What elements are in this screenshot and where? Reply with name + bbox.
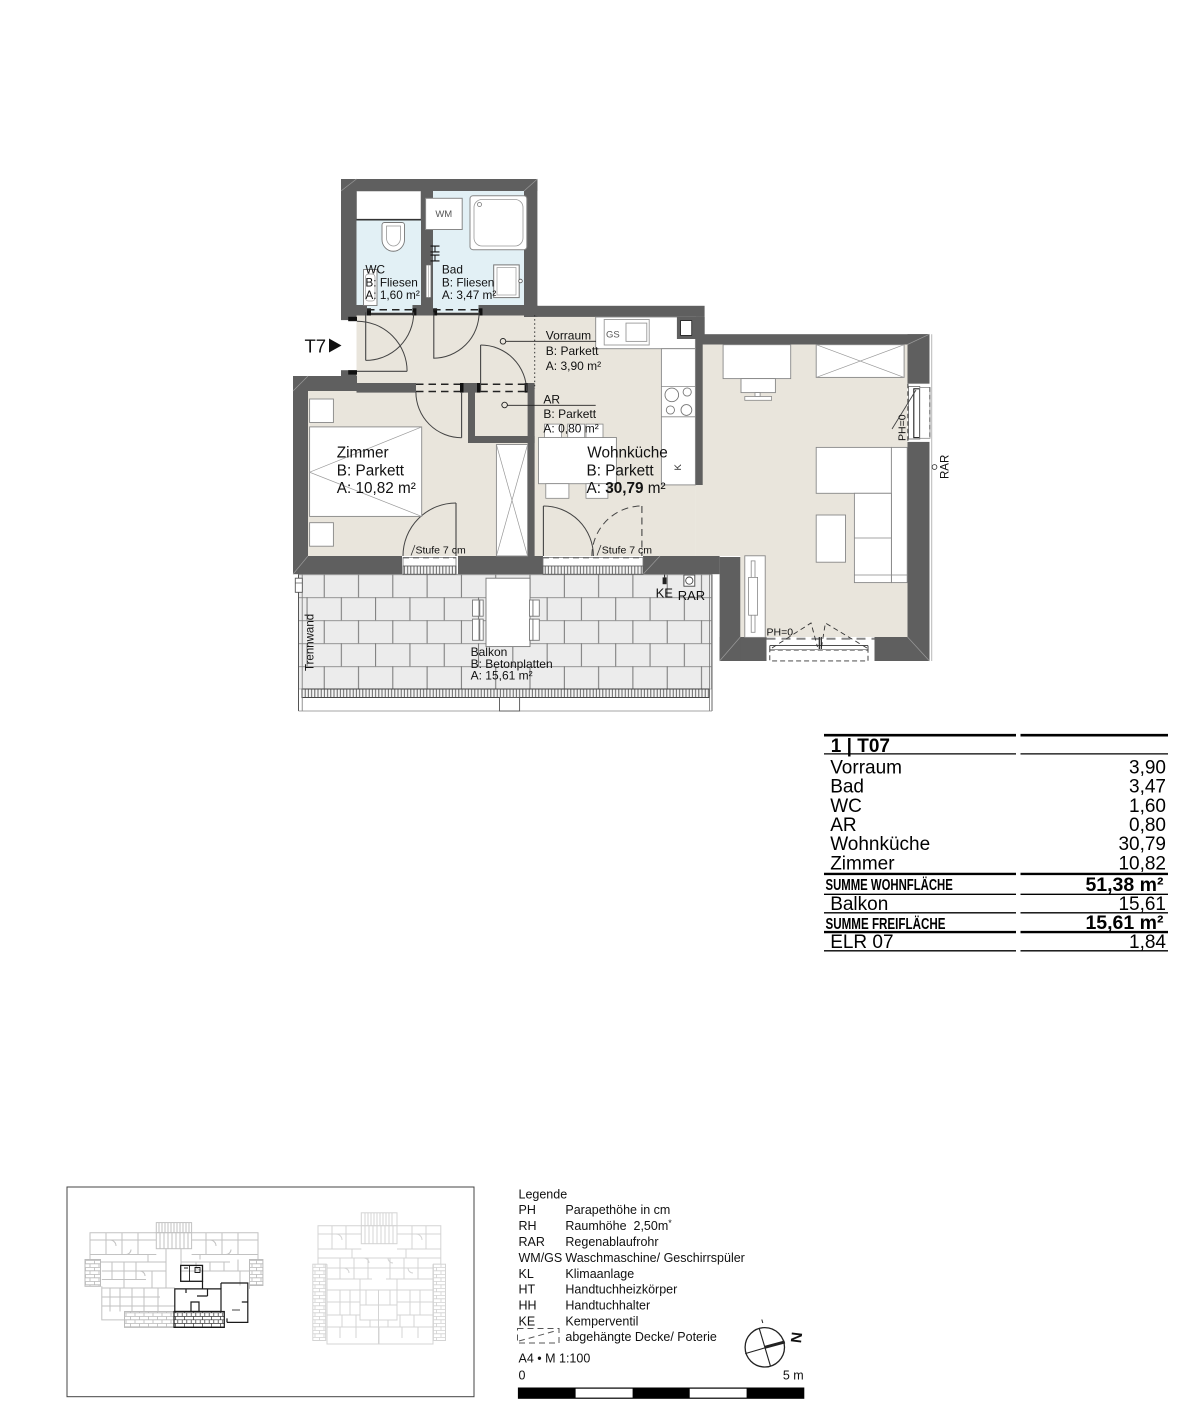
svg-text:Wohnküche: Wohnküche <box>587 445 668 462</box>
svg-text:SUMME WOHNFLÄCHE: SUMME WOHNFLÄCHE <box>826 877 953 894</box>
svg-text:HH: HH <box>429 244 443 262</box>
svg-text:A: 3,47 m²: A: 3,47 m² <box>442 288 496 302</box>
svg-text:SUMME FREIFLÄCHE: SUMME FREIFLÄCHE <box>826 916 946 933</box>
svg-text:B: Parkett: B: Parkett <box>543 407 596 421</box>
svg-text:A: 1,60 m²: A: 1,60 m² <box>365 288 419 302</box>
svg-text:AR: AR <box>830 815 856 836</box>
svg-text:PH=0: PH=0 <box>897 414 909 441</box>
svg-text:30,79: 30,79 <box>1118 834 1166 855</box>
svg-text:Trennwand: Trennwand <box>305 614 317 671</box>
svg-text:WM/GS: WM/GS <box>519 1251 563 1265</box>
svg-text:Raumhöhe 2,50m*: Raumhöhe 2,50m* <box>565 1218 672 1233</box>
svg-text:Zimmer: Zimmer <box>337 445 389 462</box>
svg-text:Handtuchheizkörper: Handtuchheizkörper <box>565 1283 677 1297</box>
svg-text:KL: KL <box>519 1267 534 1281</box>
svg-text:PH: PH <box>519 1203 536 1217</box>
svg-text:Balkon: Balkon <box>830 894 888 915</box>
svg-text:3,47: 3,47 <box>1129 777 1166 798</box>
svg-text:Waschmaschine/ Geschirrspüler: Waschmaschine/ Geschirrspüler <box>565 1251 744 1265</box>
svg-text:0: 0 <box>519 1369 526 1383</box>
svg-text:Vorraum: Vorraum <box>546 329 591 343</box>
svg-text:A: 10,82 m²: A: 10,82 m² <box>337 480 416 497</box>
svg-text:5 m: 5 m <box>783 1369 804 1383</box>
svg-text:15,61 m²: 15,61 m² <box>1085 912 1164 934</box>
svg-text:3,90: 3,90 <box>1129 757 1166 778</box>
svg-text:T7: T7 <box>305 336 327 357</box>
svg-text:Klimaanlage: Klimaanlage <box>565 1267 634 1281</box>
svg-text:Legende: Legende <box>519 1188 568 1202</box>
svg-text:GS: GS <box>606 330 620 341</box>
svg-text:Vorraum: Vorraum <box>830 757 902 778</box>
svg-text:A: 30,79 m²: A: 30,79 m² <box>587 480 666 497</box>
svg-text:B: Parkett: B: Parkett <box>337 463 405 480</box>
svg-text:PH=0: PH=0 <box>767 627 794 639</box>
svg-text:AR: AR <box>543 392 560 406</box>
svg-text:HH: HH <box>519 1299 537 1313</box>
svg-text:Parapethöhe in cm: Parapethöhe in cm <box>565 1203 670 1217</box>
svg-text:0,80: 0,80 <box>1129 815 1166 836</box>
svg-text:KE: KE <box>656 586 674 601</box>
svg-text:RAR: RAR <box>940 455 952 479</box>
svg-text:abgehängte Decke/ Poterie: abgehängte Decke/ Poterie <box>565 1330 717 1344</box>
svg-text:A: 0,80 m²: A: 0,80 m² <box>543 421 598 435</box>
svg-text:RAR: RAR <box>678 588 705 603</box>
svg-text:A: 3,90 m²: A: 3,90 m² <box>546 359 601 373</box>
svg-text:A: 15,61 m²: A: 15,61 m² <box>471 668 533 682</box>
svg-text:RH: RH <box>519 1219 537 1233</box>
svg-text:1,60: 1,60 <box>1129 796 1166 817</box>
svg-text:N: N <box>787 1331 805 1344</box>
svg-text:1,84: 1,84 <box>1129 932 1166 953</box>
svg-text:RAR: RAR <box>519 1235 545 1249</box>
svg-text:B: Parkett: B: Parkett <box>587 463 655 480</box>
svg-text:A4 • M 1:100: A4 • M 1:100 <box>519 1352 591 1366</box>
svg-text:B: Parkett: B: Parkett <box>546 344 599 358</box>
svg-text:KE: KE <box>519 1315 536 1329</box>
svg-text:Wohnküche: Wohnküche <box>830 834 930 855</box>
svg-text:K: K <box>673 464 684 471</box>
svg-text:WM: WM <box>435 209 452 220</box>
svg-text:HT: HT <box>519 1283 536 1297</box>
svg-text:Kemperventil: Kemperventil <box>565 1315 638 1329</box>
svg-text:Stufe 7 cm: Stufe 7 cm <box>416 545 466 557</box>
svg-text:WC: WC <box>830 796 862 817</box>
svg-text:ELR 07: ELR 07 <box>830 932 893 953</box>
svg-text:Zimmer: Zimmer <box>830 854 895 875</box>
svg-text:Bad: Bad <box>830 777 864 798</box>
svg-text:Stufe 7 cm: Stufe 7 cm <box>602 545 652 557</box>
svg-text:Regenablaufrohr: Regenablaufrohr <box>565 1235 658 1249</box>
svg-text:51,38 m²: 51,38 m² <box>1085 874 1164 896</box>
svg-text:Handtuchhalter: Handtuchhalter <box>565 1299 650 1313</box>
svg-text:10,82: 10,82 <box>1118 854 1166 875</box>
